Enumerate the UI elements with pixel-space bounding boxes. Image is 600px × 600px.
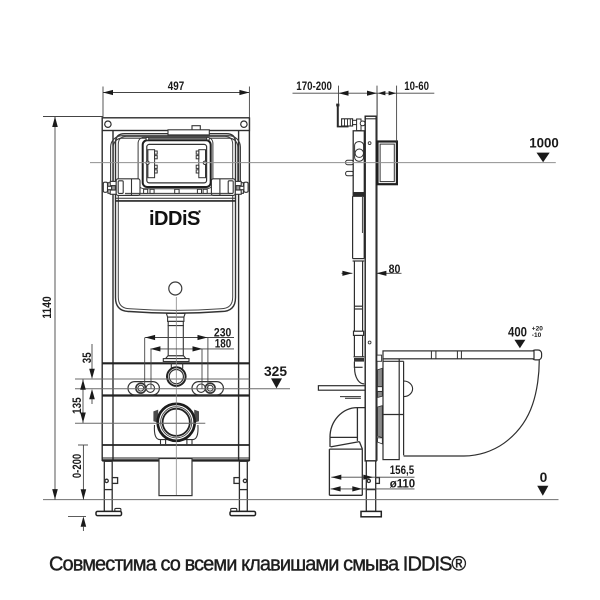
- svg-text:iDDiS: iDDiS: [149, 208, 200, 230]
- svg-text:0: 0: [540, 470, 548, 485]
- svg-text:10-60: 10-60: [404, 81, 429, 93]
- svg-text:-10: -10: [532, 332, 542, 339]
- svg-text:80: 80: [389, 264, 401, 276]
- svg-text:135: 135: [72, 397, 84, 414]
- svg-text:170-200: 170-200: [296, 81, 332, 93]
- svg-text:497: 497: [168, 81, 184, 93]
- svg-text:1000: 1000: [529, 136, 559, 151]
- svg-text:0-200: 0-200: [72, 454, 84, 478]
- svg-text:325: 325: [264, 364, 287, 379]
- svg-text:ø110: ø110: [390, 479, 416, 491]
- svg-text:35: 35: [82, 352, 94, 363]
- svg-text:1140: 1140: [42, 296, 54, 318]
- svg-text:156,5: 156,5: [390, 465, 415, 477]
- svg-text:180: 180: [215, 338, 232, 350]
- svg-text:400: 400: [508, 324, 527, 339]
- svg-text:Совместима со всеми клавишами: Совместима со всеми клавишами смыва IDDI…: [49, 554, 467, 576]
